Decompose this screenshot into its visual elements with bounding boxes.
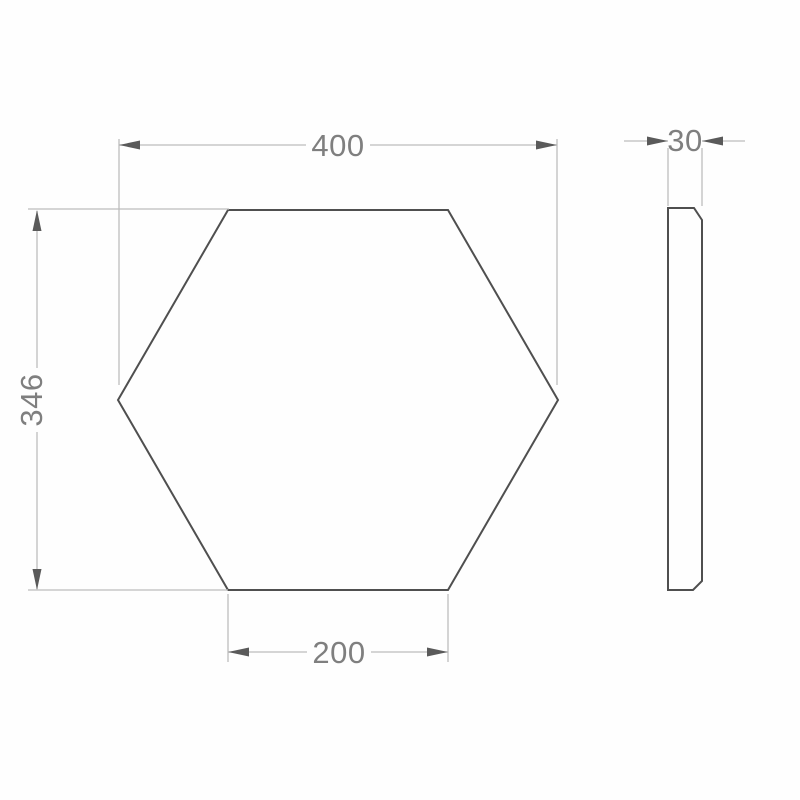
hexagon-panel-drawing: 400 346 200 30 <box>0 0 800 800</box>
hexagon-front-view <box>118 210 558 590</box>
arrowhead-height-top <box>33 210 42 231</box>
arrowhead-width-right <box>536 141 557 150</box>
technical-drawing-page: 400 346 200 30 <box>0 0 800 800</box>
arrowhead-bottom-left <box>228 648 249 657</box>
dimension-arrowheads <box>33 137 724 657</box>
arrowhead-thickness-right <box>702 137 723 146</box>
side-view-profile <box>668 208 702 590</box>
dimension-label-bottom-edge: 200 <box>312 635 365 670</box>
arrowhead-width-left <box>119 141 140 150</box>
arrowhead-height-bottom <box>33 569 42 590</box>
dimension-label-height: 346 <box>14 373 49 426</box>
arrowhead-bottom-right <box>427 648 448 657</box>
dimension-label-thickness: 30 <box>667 123 702 158</box>
dimension-label-width: 400 <box>311 128 364 163</box>
part-outlines <box>118 208 702 590</box>
dimension-labels: 400 346 200 30 <box>14 123 703 670</box>
dimension-lines <box>28 139 745 662</box>
arrowhead-thickness-left <box>647 137 668 146</box>
